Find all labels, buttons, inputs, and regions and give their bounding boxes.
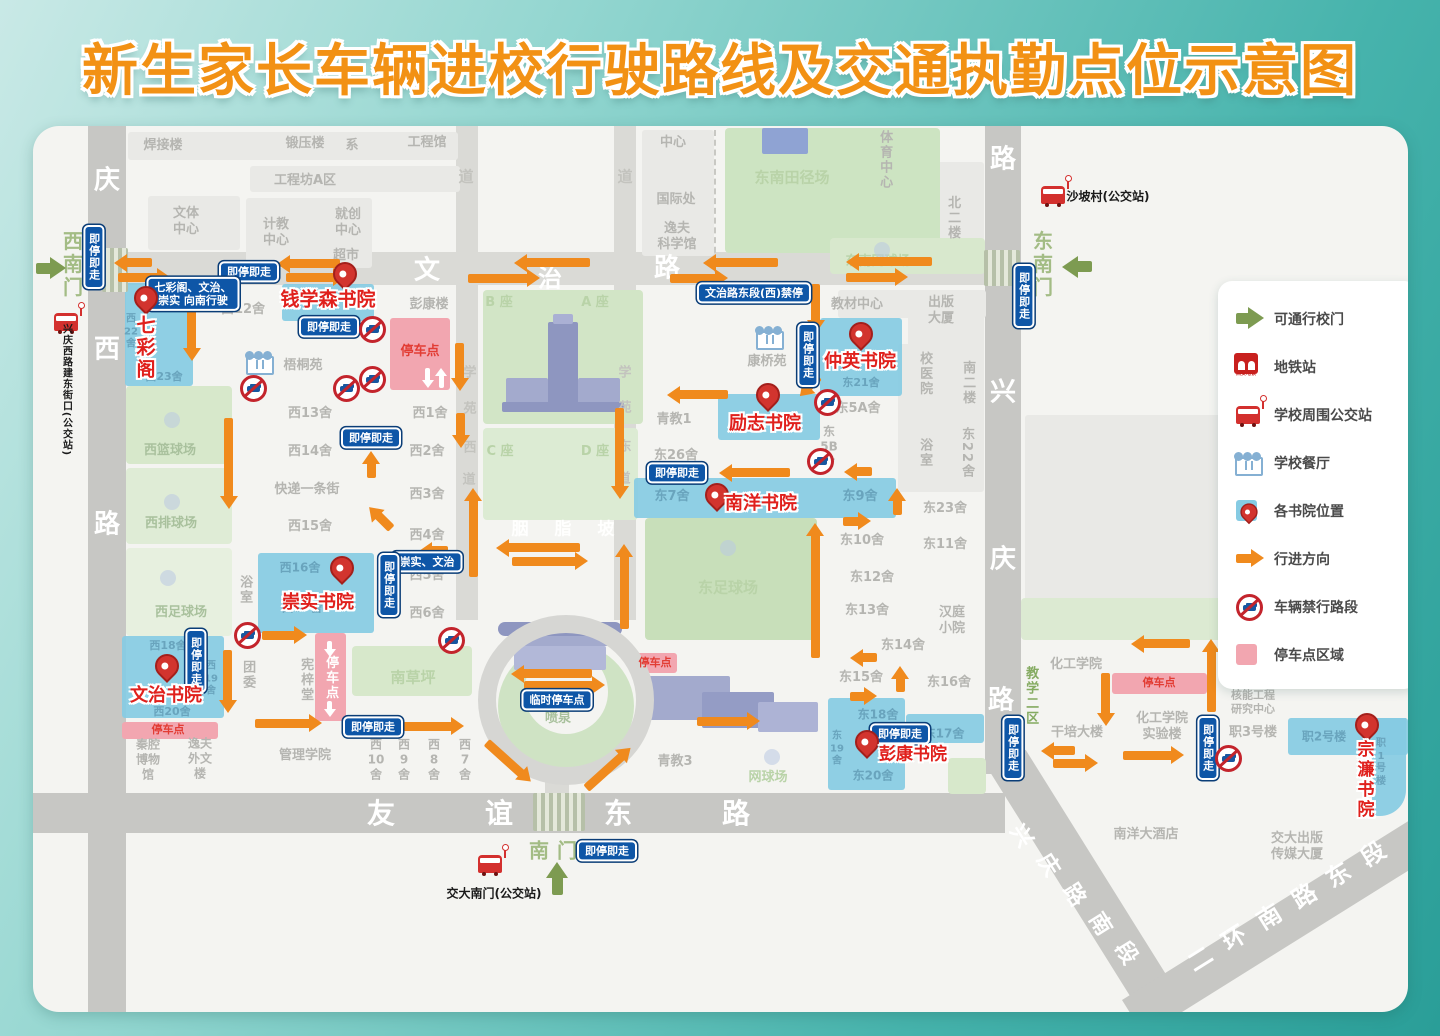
map-element [667,386,680,404]
map-element [255,719,311,728]
map-element [496,539,509,557]
map-element [1053,759,1087,768]
building-label: 管理学院 [279,748,331,764]
building-label: 西 9 舍 [398,738,410,783]
map-element [714,259,778,268]
college-square [1236,500,1257,521]
building-label: 西1舍 [412,406,447,422]
building-label: 东13舍 [845,603,889,619]
building-label: 康桥苑 [747,354,786,370]
legend-item-3: 学校周围公交站 [1234,391,1408,439]
stop-and-go-badge: 七彩阁、文治、 崇实 向南行驶 [147,277,240,311]
map-element [522,670,592,679]
map-legend: 可通行校门西安地铁地铁站学校周围公交站学校餐厅各书院位置行进方向车辆禁行路段停车… [1218,281,1408,689]
college-name: 宗濂书院 [1352,740,1377,820]
map-element [183,348,201,361]
legend-item-5: 各书院位置 [1234,487,1408,535]
map-element [719,464,732,482]
map-element [861,654,877,663]
map-element [864,687,877,705]
map-element [286,273,335,282]
green-area [948,758,986,794]
map-element [456,343,465,380]
building-label: 西3舍 [409,487,444,503]
building-label: 东10舍 [840,533,884,549]
stop-and-go-badge: 即停即走 [343,716,403,737]
stop-and-go-badge: 即停即走 [341,427,401,448]
building-label: 西15舍 [288,519,332,535]
campus-map-panel: 停车点停车点停车点停车点停车点庆西路路兴庆路友谊东路文治路道道学苑西道学苑东道兴… [33,126,1408,1012]
stop-and-go-badge: 即停即走 [1197,716,1218,780]
road [33,793,1005,833]
building-label: 西14舍 [288,444,332,460]
building-label: 逸夫 外文 楼 [188,737,212,782]
stop-and-go-badge: 即停即走 [83,225,104,289]
building-label: 东15舍 [839,670,883,686]
restaurant-icon [246,356,274,375]
map-element [1097,713,1115,726]
map-element [422,380,434,388]
sports-ball-icon [764,749,780,765]
college-name: 七彩阁 [132,315,159,381]
map-element [546,862,568,878]
map-element [514,254,527,272]
map-element [1052,747,1075,756]
legend-label: 行进方向 [1274,549,1330,569]
map-element [844,463,857,481]
road [985,126,1021,774]
map-element [468,274,529,283]
map-element [616,408,625,488]
map-element [309,714,322,732]
gate-icon [533,793,585,831]
map-element [592,676,605,694]
building-block [250,166,460,192]
no-entry-sign [240,375,267,402]
building-label: 浴室 [236,575,252,605]
map-element [367,462,376,478]
building-label: 职3号楼 [1229,725,1277,741]
map-element [611,486,629,499]
building-label: 西6舍 [409,606,444,622]
map-element [670,274,717,283]
map-element [1102,673,1111,715]
road [990,750,1170,1003]
map-element [858,512,871,530]
legend-label: 车辆禁行路段 [1274,597,1358,617]
stop-and-go-badge: 崇实、文治 [392,551,463,572]
map-element [324,709,336,717]
building-label: 东23舍 [923,501,967,517]
legend-item-2: 西安地铁地铁站 [1234,343,1408,391]
college-name: 彭康书院 [879,740,947,765]
map-element [125,259,152,268]
green-area [126,386,232,464]
stop-and-go-badge: 文治路东段(西)禁停 [697,282,811,303]
legend-label: 停车点区域 [1274,645,1344,665]
map-element [846,273,897,282]
map-element [615,544,633,557]
bus-stop-label: 沙坡村(公交站) [1067,188,1150,205]
legend-item-1: 可通行校门 [1234,295,1408,343]
sports-ball-icon [720,540,736,556]
map-element [1062,256,1078,278]
building-label: 化工学院 实验楼 [1136,711,1188,744]
restaurant-icon [1235,457,1263,476]
map-element [362,451,380,464]
college-name: 崇实书院 [282,588,354,614]
building-label: 西 10 舍 [368,738,385,783]
parking-square [1236,644,1257,665]
building-label: 化工学院 [1050,657,1102,673]
map-element [469,499,478,577]
road [1122,820,1408,1012]
no-entry-sign [1215,745,1242,772]
map-element [114,254,127,272]
map-element [439,374,444,388]
map-element [435,368,447,376]
no-entry-sign [234,622,261,649]
parking-area [122,722,218,739]
college-location-pin [1237,500,1261,524]
sports-ball-icon [160,570,176,586]
building-block [898,344,984,492]
map-element [811,534,820,658]
map-element [697,717,749,726]
building-label: 东12舍 [850,570,894,586]
map-element [1251,549,1264,567]
stop-and-go-badge: 即停即走 [797,323,818,387]
map-element [511,665,524,683]
map-element [80,306,82,316]
bus-stop-icon [478,855,502,873]
map-element [1171,746,1184,764]
map-element [1262,399,1264,409]
map-element [846,253,859,271]
college-name: 仲英书院 [824,347,896,373]
no-entry-sign [333,375,360,402]
legend-label: 地铁站 [1274,357,1316,377]
legend-label: 各书院位置 [1274,501,1344,521]
map-element [850,649,863,667]
map-element [1248,307,1264,329]
stop-and-go-badge: 即停即走 [647,462,707,483]
map-element [575,552,588,570]
map-element [262,631,296,640]
map-element [224,650,233,702]
map-element [294,626,307,644]
map-element [524,681,594,690]
map-element [1131,635,1144,653]
college-pin-icon [1234,493,1274,529]
building-label: 快递一条街 [274,482,339,498]
parking-area [1112,673,1207,694]
stop-and-go-badge: 即停即走 [1002,716,1023,780]
building-label: 梧桐苑 [283,358,322,374]
map-element [451,717,464,735]
building-label: 西 8 舍 [428,738,440,783]
restaurant-icon [756,331,784,350]
bus-icon [1234,397,1274,433]
building-label: 网球场 [748,770,787,786]
legend-item-8: 停车点区域 [1234,631,1408,679]
metro-caption: 西安地铁 [1234,370,1258,377]
route-direction-arrow [369,507,391,529]
map-element [1041,742,1054,760]
legend-label: 可通行校门 [1274,309,1344,329]
poster-title: 新生家长车辆进校行驶路线及交通执勤点位示意图 [0,26,1440,107]
building-label: 西 7 舍 [459,738,471,783]
green-area [645,518,817,640]
map-element [893,499,902,515]
map-element [50,257,66,279]
map-element [220,496,238,509]
map-element [225,418,234,498]
building-structure [548,322,578,406]
building-structure [758,702,818,732]
no-entry-sign [814,389,841,416]
college-name: 南洋书院 [725,489,797,515]
building-label: 西2舍 [409,444,444,460]
map-element [527,269,540,287]
building-label: 西13舍 [288,406,332,422]
building-block [148,196,240,250]
building-label: 青教3 [657,754,692,770]
building-label: 青教1 [656,412,691,428]
stop-and-go-badge: 即停即走 [378,553,399,617]
map-element [552,876,563,895]
stop-and-go-badge: 即停即走 [1013,264,1034,328]
map-element [512,557,577,566]
green-area [126,468,232,544]
green-area [126,548,232,636]
stop-and-go-badge: 临时停车点 [522,689,593,710]
building-label: 东11舍 [923,537,967,553]
map-element [1076,262,1092,273]
sports-ball-icon [164,494,180,510]
college-name: 钱学森书院 [280,285,375,312]
map-element [891,666,909,679]
college-area [1372,718,1406,816]
no-entry-sign [359,316,386,343]
gate-arrow-icon [1234,301,1274,337]
sports-ball-icon [874,242,890,258]
map-element [747,712,760,730]
map-element [504,848,506,858]
building-structure [762,128,808,154]
map-element [452,435,470,448]
building-label: 干培大楼 [1051,725,1103,741]
map-element [1142,640,1190,649]
building-block [642,130,714,256]
restaurant-icon [1234,445,1274,481]
building-label: 胭 脂 坡 [512,519,625,540]
map-element [219,700,237,713]
map-element [855,468,872,477]
college-name: 文治书院 [130,681,202,707]
stop-and-go-badge: 即停即走 [299,316,359,337]
map-element [1085,754,1098,772]
no-entry-sign [359,366,386,393]
bus-stop-label: 交大南门(公交站) [447,885,542,902]
legend-label: 学校周围公交站 [1274,405,1372,425]
map-element [525,259,590,268]
building-label: 团委 [239,660,255,690]
building-label: 交大出版 传媒大厦 [1271,831,1323,864]
building-block [128,132,458,160]
building-block [246,198,372,268]
map-element [1207,650,1216,712]
legend-item-7: 车辆禁行路段 [1234,583,1408,631]
map-element [678,391,728,400]
map-element [730,469,790,478]
map-element [507,544,580,553]
bus-stop-icon [1041,186,1065,204]
sports-ball-icon [164,412,180,428]
building-structure [502,402,624,412]
map-element [896,677,905,692]
no-entry-sign [807,448,834,475]
building-label: 东14舍 [881,638,925,654]
building-label: 东5A舍 [835,401,880,417]
poster-stage: 新生家长车辆进校行驶路线及交通执勤点位示意图 停车点停车点停车点停车点停车点庆西… [0,0,1440,1036]
no-car-icon [1234,589,1274,625]
map-element [457,413,466,437]
map-element [324,649,336,657]
map-element [403,722,453,731]
map-element [464,488,482,501]
building-label: 汉庭 小院 [939,605,965,638]
building-label: 宪梓堂 [297,658,313,703]
college-name: 励志书院 [729,409,801,435]
building-label: 彭康楼 [409,297,448,313]
stop-and-go-badge: 即停即走 [577,840,637,861]
building-label: 教学二区 [1022,666,1038,726]
map-element [812,284,821,322]
bus-stop-label: 兴庆西路建东街口(公交站) [59,324,74,456]
building-label: 秦腔 博物 馆 [136,738,160,783]
building-structure [553,314,573,324]
map-element [888,488,906,501]
legend-item-4: 学校餐厅 [1234,439,1408,487]
map-element [806,523,824,536]
map-element [620,555,629,629]
no-entry-sign [1236,594,1263,621]
building-label: 东16舍 [927,675,971,691]
metro-icon: 西安地铁 [1234,349,1274,385]
legend-label: 学校餐厅 [1274,453,1330,473]
bus-stop-icon [1236,406,1260,424]
map-element [895,268,908,286]
building-label: 南洋大酒店 [1113,827,1178,843]
map-element [451,378,469,391]
map-element [1123,751,1173,760]
no-entry-sign [438,627,465,654]
legend-item-6: 行进方向 [1234,535,1408,583]
green-area [725,128,940,253]
parking-icon [1234,637,1274,673]
map-element [857,258,932,267]
direction-arrow-icon [1234,541,1274,577]
